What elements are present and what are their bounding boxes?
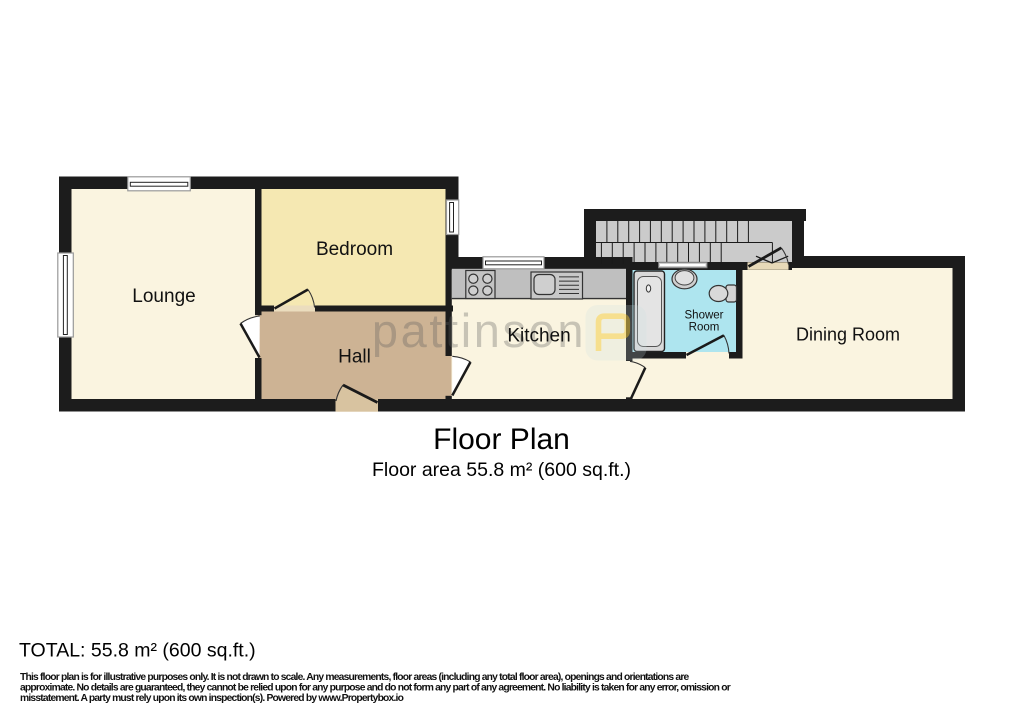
svg-text:Lounge: Lounge [132,286,195,307]
svg-text:Shower: Shower [685,310,724,322]
svg-text:This floor plan is for illustr: This floor plan is for illustrative purp… [20,672,690,683]
svg-text:Floor area 55.8 m² (600 sq.ft.: Floor area 55.8 m² (600 sq.ft.) [372,459,631,481]
svg-text:Room: Room [689,322,720,334]
svg-text:approximate. No details are gu: approximate. No details are guaranteed, … [20,683,731,694]
svg-text:TOTAL: 55.8 m² (600 sq.ft.): TOTAL: 55.8 m² (600 sq.ft.) [19,640,256,662]
svg-text:Hall: Hall [338,347,371,368]
svg-text:Kitchen: Kitchen [507,326,570,347]
svg-text:Floor Plan: Floor Plan [433,423,570,456]
svg-text:misstatement. A party must rel: misstatement. A party must rely upon its… [20,693,404,704]
svg-text:Bedroom: Bedroom [316,239,393,260]
svg-text:Dining Room: Dining Room [796,325,900,345]
